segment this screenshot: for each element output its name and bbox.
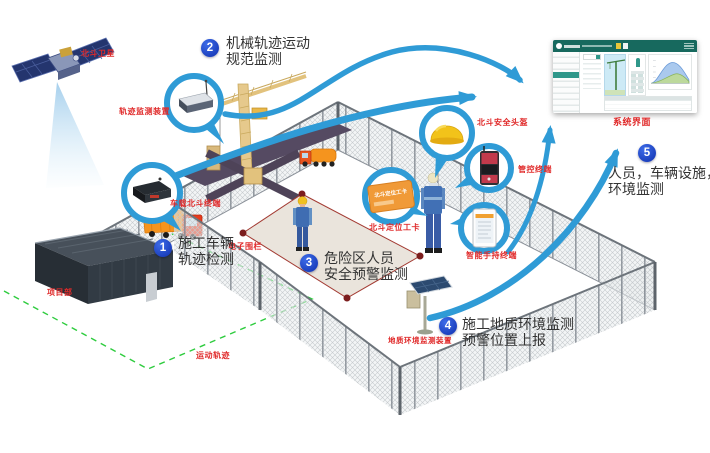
dashboard-sidebar-active-item	[553, 72, 579, 78]
dashboard-status-panel	[628, 54, 646, 96]
vehicle-terminal-label: 车载北斗终端	[170, 199, 221, 209]
dashboard-search-box	[583, 54, 601, 60]
positioning-card-callout: 北斗定位工卡	[365, 170, 417, 222]
dashboard-title-bar	[564, 45, 580, 48]
step4-badge: 4	[439, 317, 457, 335]
step5-text: 人员，车辆设施， 环境监测	[608, 167, 710, 199]
construction-site-monitoring-diagram: 北斗定位工卡	[0, 0, 710, 453]
step4-line2: 预警位置上报	[462, 334, 546, 349]
dashboard-search-icon	[596, 55, 600, 59]
beidou-satellite-illustration	[12, 38, 114, 82]
dashboard-alert-icon	[616, 43, 621, 49]
step3-line1: 危险区人员	[324, 252, 394, 267]
project-department-label: 项目部	[47, 288, 73, 298]
step2-line2: 规范监测	[226, 53, 282, 68]
dashboard-person-glyph	[636, 58, 640, 67]
dashboard-crane-ground	[605, 90, 625, 95]
handheld-terminal-label: 智能手持终端	[466, 251, 517, 261]
step1-line2: 轨迹检测	[178, 253, 234, 268]
dashboard-control-chips	[631, 71, 644, 93]
dashboard-crane-glyph	[605, 55, 627, 95]
dashboard-device-list	[583, 63, 601, 89]
dashboard-sidebar	[553, 52, 580, 113]
dashboard-body	[553, 52, 697, 113]
vehicle-terminal-callout	[124, 165, 180, 221]
step1-line1: 施工车辆	[178, 237, 234, 252]
step4-line1: 施工地质环境监测	[462, 318, 574, 333]
safety-helmet-callout	[422, 108, 472, 158]
system-interface-label: 系统界面	[613, 117, 651, 127]
control-terminal-label: 管控终端	[518, 165, 552, 175]
dashboard-subtitle-bar	[582, 45, 612, 47]
step5-line1: 人员，车辆设施，	[608, 167, 710, 182]
positioning-card-icon: 北斗定位工卡	[367, 180, 414, 213]
track-device-callout	[167, 76, 221, 130]
step5-badge: 5	[638, 144, 656, 162]
step2-badge: 2	[201, 39, 219, 57]
control-terminal-icon	[480, 146, 499, 185]
step1-badge: 1	[154, 239, 172, 257]
step4-text: 施工地质环境监测 预警位置上报	[462, 318, 574, 350]
dashboard-main	[580, 52, 697, 113]
dashboard-doc-icon	[623, 43, 628, 49]
step2-text: 机械轨迹运动 规范监测	[226, 37, 310, 69]
step3-badge: 3	[300, 254, 318, 272]
dashboard-trend-chart	[648, 54, 692, 90]
satellite-label: 北斗卫星	[81, 49, 115, 59]
track-device-label: 轨迹监测装置	[119, 107, 170, 117]
movement-track-label: 运动轨迹	[196, 351, 230, 361]
dashboard-crane-view	[604, 54, 626, 96]
geo-monitor-label: 地质环境监测装置	[388, 336, 452, 346]
handheld-terminal-callout	[461, 205, 507, 251]
step3-line2: 安全预警监测	[324, 268, 408, 283]
step5-line2: 环境监测	[608, 183, 664, 198]
signal-beam	[46, 82, 104, 188]
dashboard-logo-icon	[556, 43, 562, 49]
dashboard-data-table	[604, 96, 692, 111]
step1-text: 施工车辆 轨迹检测	[178, 237, 234, 269]
positioning-card-label: 北斗定位工卡	[369, 223, 420, 233]
system-interface-panel	[553, 40, 697, 113]
handheld-terminal-icon	[473, 209, 496, 247]
step2-line1: 机械轨迹运动	[226, 37, 310, 52]
step3-text: 危险区人员 安全预警监测	[324, 252, 408, 284]
dashboard-chart-glyph	[649, 55, 691, 89]
tanker-truck-illustration	[300, 149, 336, 167]
dashboard-user-menu	[684, 43, 694, 50]
dashboard-header	[553, 40, 697, 52]
control-terminal-callout	[467, 146, 511, 190]
safety-helmet-label: 北斗安全头盔	[477, 118, 528, 128]
